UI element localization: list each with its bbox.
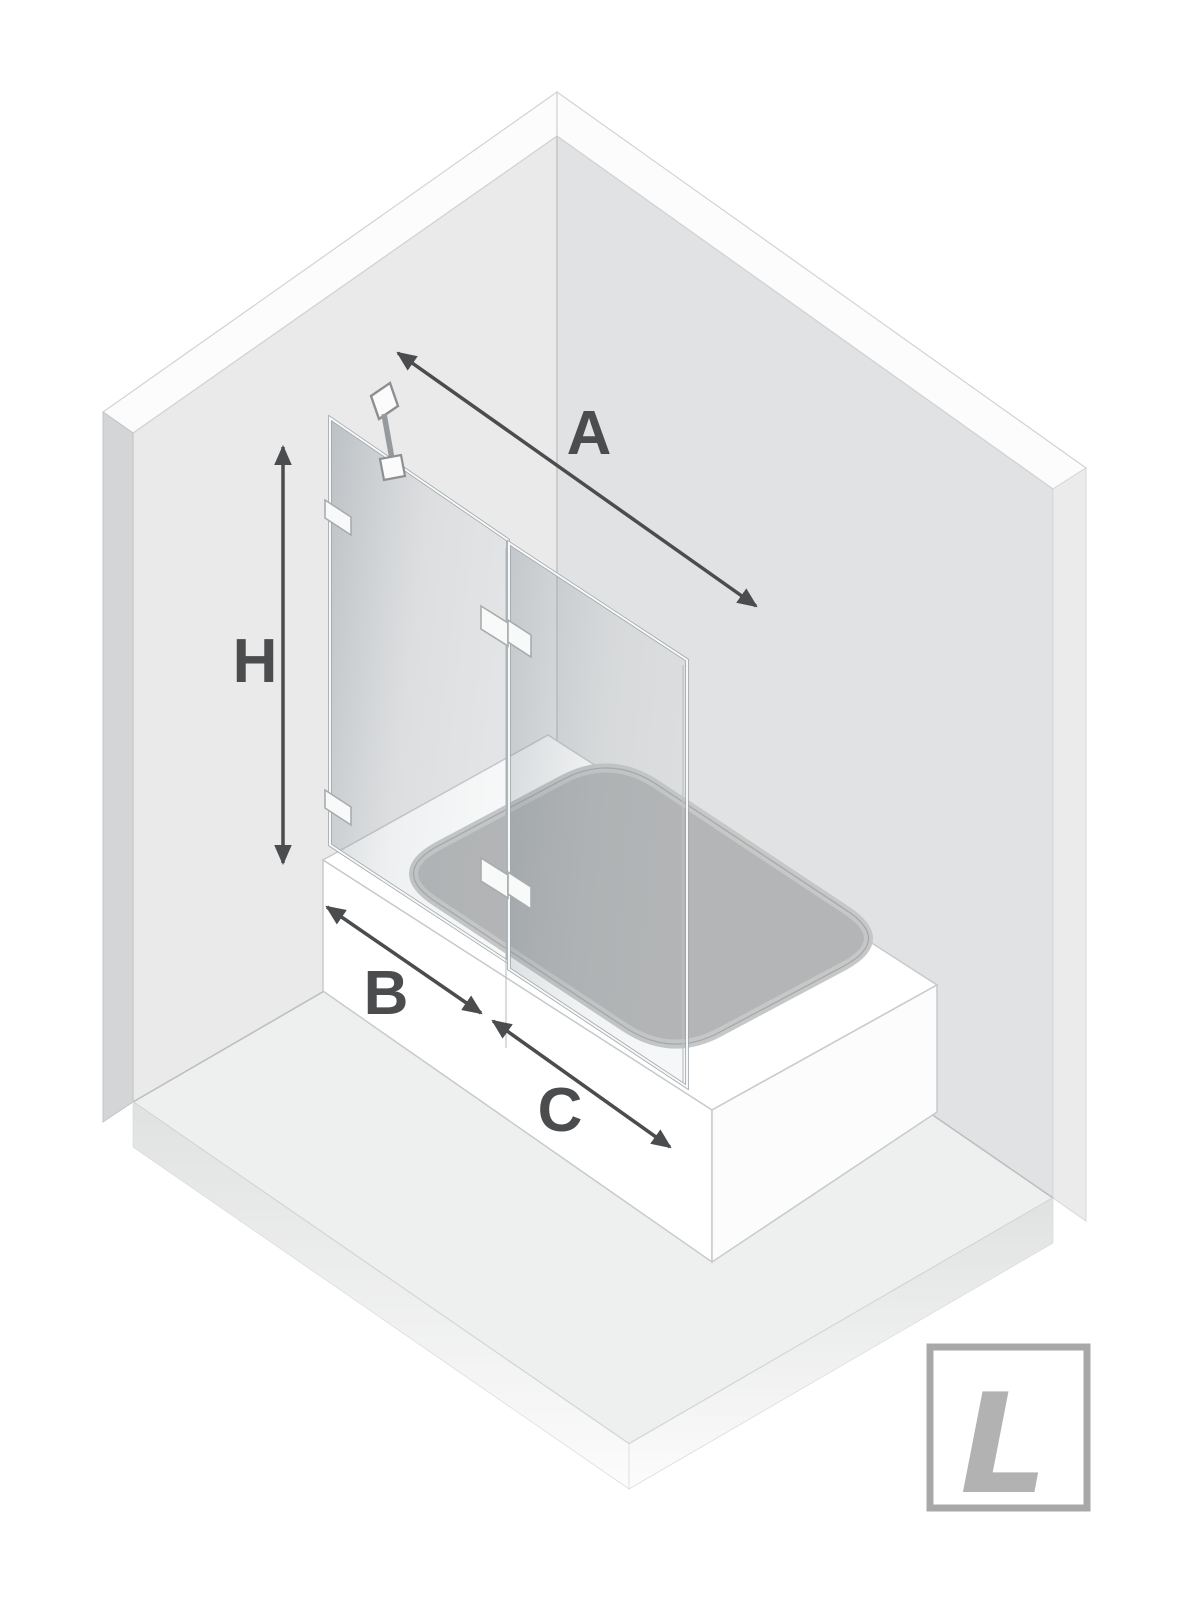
support-bar-glass-clamp	[380, 455, 405, 480]
orientation-logo-letter: L	[960, 1364, 1048, 1525]
diagram-canvas: A H B C L	[0, 0, 1200, 1600]
dimension-b-label: B	[364, 959, 409, 1028]
left-wall-side-face	[103, 412, 133, 1122]
bathtub-screen-diagram: A H B C L	[0, 0, 1200, 1600]
dimension-h-label: H	[233, 627, 278, 696]
dimension-c-label: C	[538, 1076, 583, 1145]
right-wall-side-face	[1053, 468, 1086, 1221]
orientation-logo: L	[930, 1347, 1087, 1525]
dimension-a-label: A	[567, 399, 612, 468]
